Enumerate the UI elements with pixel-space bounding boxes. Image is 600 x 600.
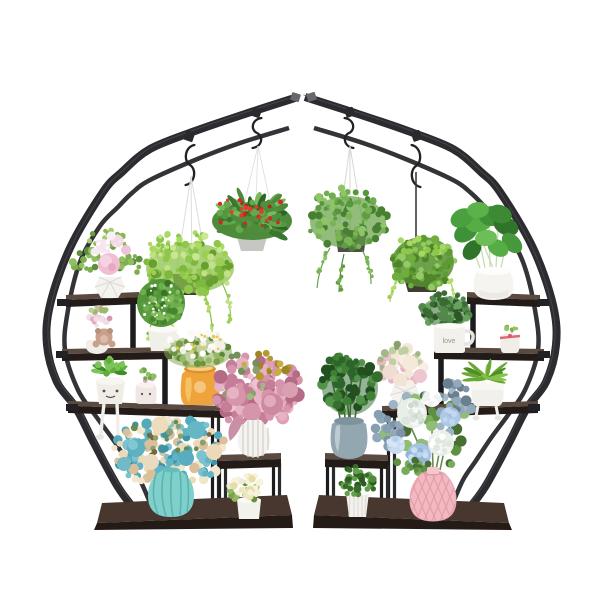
svg-text:love: love — [443, 338, 456, 345]
